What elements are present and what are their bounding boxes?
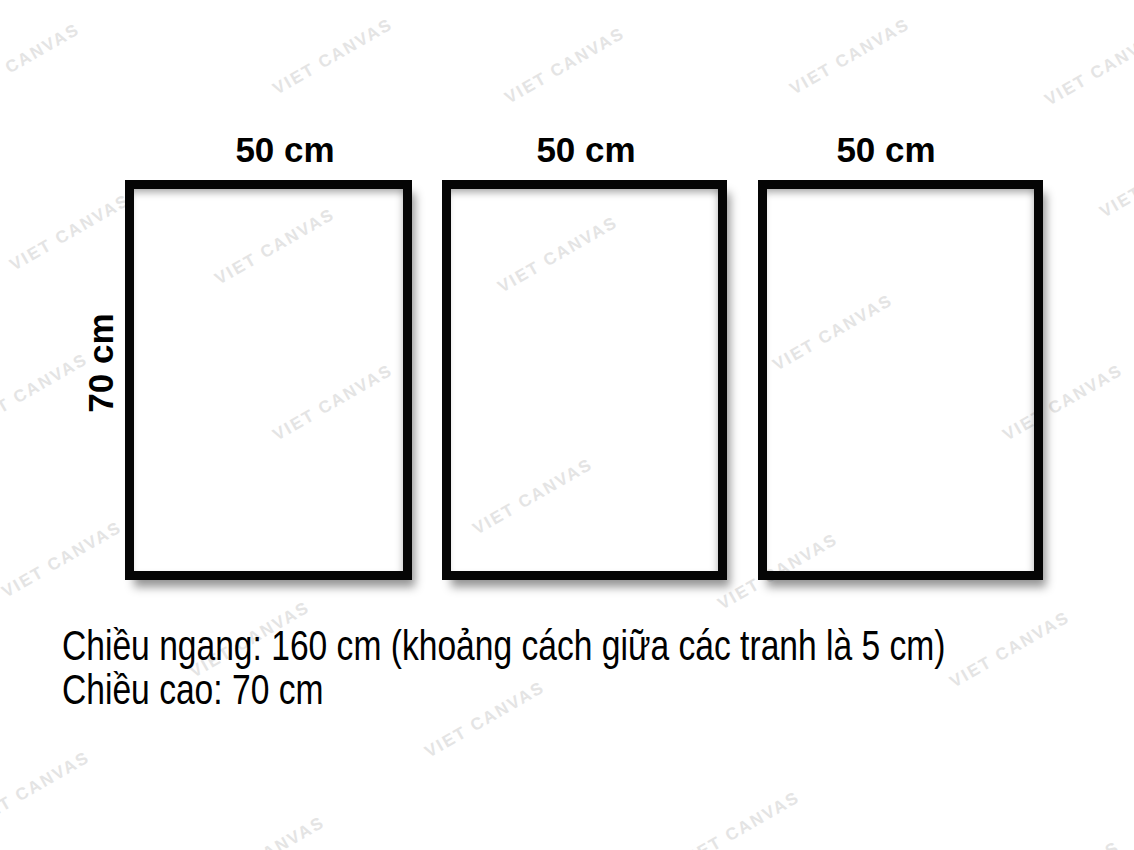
brand-watermark: VIET CANVAS <box>997 838 1124 850</box>
brand-watermark: VIET CANVAS <box>502 24 629 109</box>
brand-watermark: VIET CANVAS <box>1042 26 1134 111</box>
panel-3-width-label: 50 cm <box>836 130 935 170</box>
panel-height-label: 70 cm <box>81 313 121 412</box>
brand-watermark: VIET CANVAS <box>270 15 397 100</box>
panel-frame-3 <box>758 180 1043 580</box>
brand-watermark: VIET CANVAS <box>787 15 914 100</box>
brand-watermark: VIET CANVAS <box>0 20 83 105</box>
size-caption: Chiều ngang: 160 cm (khoảng cách giữa cá… <box>62 624 946 712</box>
caption-vertical-size: Chiều cao: 70 cm <box>62 668 946 712</box>
panel-1-width-label: 50 cm <box>235 130 334 170</box>
brand-watermark: VIET CANVAS <box>677 788 804 850</box>
brand-watermark: VIET CANVAS <box>947 608 1074 693</box>
dimension-diagram: VIET CANVASVIET CANVASVIET CANVASVIET CA… <box>0 0 1134 850</box>
caption-horizontal-size: Chiều ngang: 160 cm (khoảng cách giữa cá… <box>62 624 946 668</box>
brand-watermark: VIET CANVAS <box>202 813 329 850</box>
brand-watermark: VIET CANVAS <box>0 350 91 435</box>
brand-watermark: VIET CANVAS <box>1097 138 1134 223</box>
brand-watermark: VIET CANVAS <box>0 748 93 833</box>
panel-frame-2 <box>442 180 727 580</box>
panel-frame-1 <box>125 180 412 580</box>
brand-watermark: VIET CANVAS <box>0 518 125 603</box>
brand-watermark: VIET CANVAS <box>7 191 134 276</box>
panel-2-width-label: 50 cm <box>536 130 635 170</box>
